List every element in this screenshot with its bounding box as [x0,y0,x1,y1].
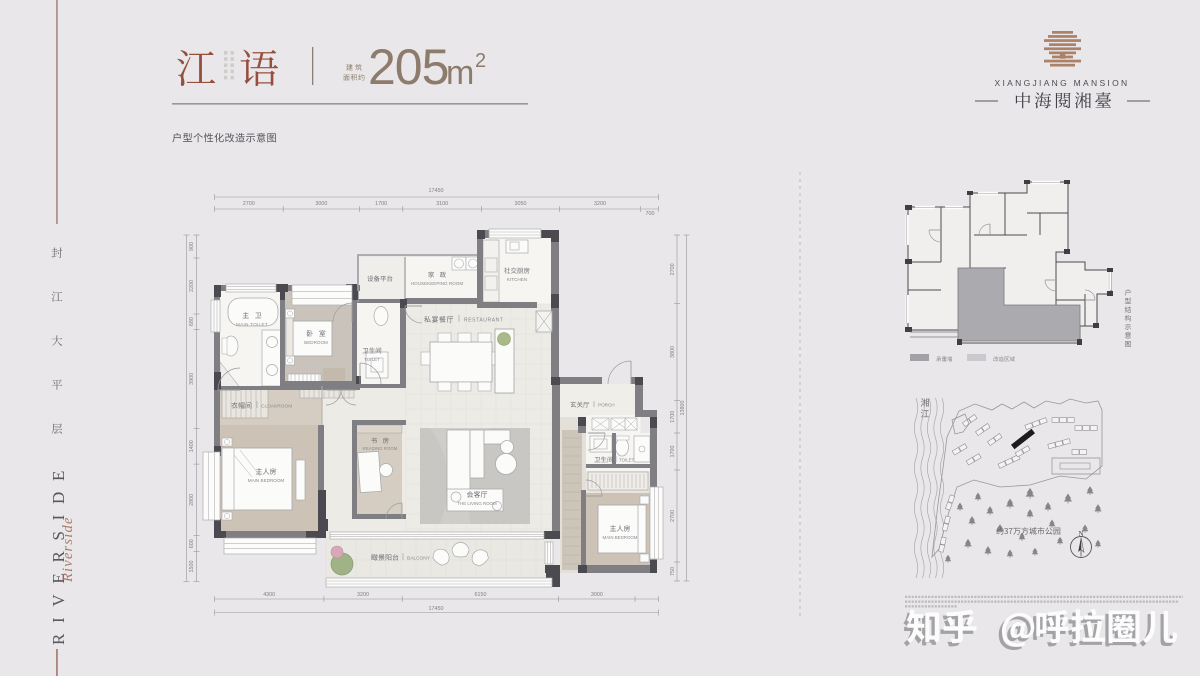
svg-text:BEDROOM: BEDROOM [304,340,328,345]
svg-text:MAIN BEDROOM: MAIN BEDROOM [603,535,638,540]
svg-text:RESTAURANT: RESTAURANT [464,318,504,324]
svg-text:3200: 3200 [357,592,369,598]
svg-text:1700: 1700 [375,201,387,207]
svg-text:KITCHEN: KITCHEN [507,277,527,282]
svg-text:3050: 3050 [515,201,527,207]
svg-text:4300: 4300 [263,592,275,598]
svg-text:TOILET: TOILET [364,357,380,362]
svg-text:MAIN TOILET: MAIN TOILET [236,322,268,327]
svg-text:2200: 2200 [189,280,195,292]
svg-text:PORCH: PORCH [598,403,615,408]
svg-text:2700: 2700 [670,263,676,275]
svg-text:2700: 2700 [243,201,255,207]
svg-text:READING ROOM: READING ROOM [363,446,398,451]
svg-text:HOUSEKEEPING ROOM: HOUSEKEEPING ROOM [411,281,463,286]
svg-text:600: 600 [189,539,195,548]
svg-text:700: 700 [646,211,655,217]
svg-text:2700: 2700 [670,510,676,522]
svg-text:TOILET: TOILET [619,458,635,463]
svg-text:205: 205 [368,39,448,95]
svg-text:3900: 3900 [189,373,195,385]
svg-text:1400: 1400 [189,440,195,452]
svg-text:900: 900 [189,242,195,251]
svg-text:3100: 3100 [436,201,448,207]
svg-text:680: 680 [189,317,195,326]
svg-text:THE LIVING ROOM: THE LIVING ROOM [457,501,497,506]
svg-text:CLOAKROOM: CLOAKROOM [261,404,292,410]
svg-text:3800: 3800 [670,346,676,358]
svg-text:750: 750 [670,567,676,576]
svg-text:MAIN BEDROOM: MAIN BEDROOM [248,478,285,483]
svg-text:1500: 1500 [189,561,195,573]
svg-text:BALCONY: BALCONY [407,556,431,562]
svg-text:17450: 17450 [429,188,444,194]
svg-text:m: m [446,54,474,92]
svg-text:6150: 6150 [475,592,487,598]
svg-text:2: 2 [475,50,486,72]
svg-text:17450: 17450 [429,606,444,612]
svg-text:2800: 2800 [189,494,195,506]
svg-text:13800: 13800 [680,401,686,416]
svg-text:XIANGJIANG MANSION: XIANGJIANG MANSION [995,78,1130,88]
svg-text:3200: 3200 [594,201,606,207]
svg-text:3000: 3000 [591,592,603,598]
svg-text:3000: 3000 [315,201,327,207]
svg-text:Riverside: Riverside [60,516,76,583]
svg-text:1700: 1700 [670,446,676,458]
svg-text:N: N [1078,530,1083,538]
svg-text:1700: 1700 [670,411,676,423]
